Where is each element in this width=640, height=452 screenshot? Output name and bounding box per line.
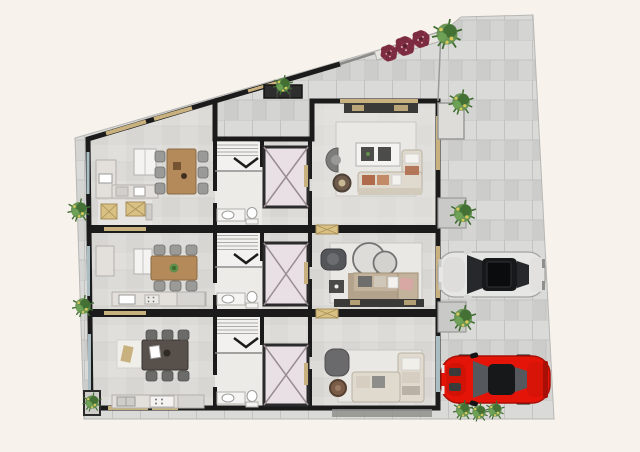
armchair-seat bbox=[331, 155, 341, 165]
chair bbox=[155, 151, 165, 162]
unit-3-living-room bbox=[325, 349, 424, 402]
left-wall-glass bbox=[88, 334, 91, 390]
car-headlight bbox=[439, 282, 442, 290]
table-decor bbox=[164, 350, 171, 357]
car-roof bbox=[488, 364, 515, 395]
partition-wall bbox=[213, 139, 217, 191]
right-wall-glass-door bbox=[436, 336, 440, 392]
sideboard-tray bbox=[378, 147, 391, 161]
centerpiece-plant-core bbox=[172, 266, 176, 270]
burner bbox=[161, 399, 163, 401]
bathroom-sink bbox=[222, 295, 234, 303]
sofa-cushion bbox=[377, 175, 389, 185]
left-wall-glass bbox=[87, 152, 90, 194]
car-taillight bbox=[542, 281, 545, 290]
console-decor bbox=[404, 300, 416, 305]
table-decor bbox=[181, 173, 187, 179]
car-windshield bbox=[473, 361, 489, 398]
chair bbox=[170, 281, 181, 291]
chair bbox=[198, 151, 208, 162]
cooktop bbox=[145, 295, 159, 304]
partition-wall bbox=[213, 203, 217, 227]
table-decor bbox=[149, 345, 161, 358]
chair bbox=[146, 371, 157, 381]
chair bbox=[154, 245, 165, 255]
sofa-cushion bbox=[356, 376, 370, 388]
burner bbox=[148, 297, 150, 299]
curved-cabinet bbox=[325, 349, 349, 376]
elevator-unit-3 bbox=[264, 345, 308, 405]
chair bbox=[198, 167, 208, 178]
chaise-pillow bbox=[405, 154, 419, 163]
elevator-unit-1 bbox=[264, 147, 308, 207]
toilet bbox=[247, 208, 257, 219]
stair-floor bbox=[215, 233, 262, 268]
unit-2-living-room bbox=[321, 243, 424, 307]
car-hood-vent bbox=[449, 368, 461, 376]
car-taillight bbox=[542, 259, 545, 268]
elevator-door bbox=[304, 165, 308, 187]
burner bbox=[155, 403, 157, 405]
sofa-pillow-pink bbox=[399, 277, 414, 291]
silver-sedan bbox=[438, 248, 545, 301]
side-counter bbox=[96, 246, 114, 276]
elevator-unit-2 bbox=[264, 243, 308, 305]
pouf-center bbox=[335, 385, 341, 391]
car-rear-window bbox=[515, 367, 527, 392]
car-rear-deck bbox=[527, 362, 544, 397]
burner bbox=[161, 403, 163, 405]
chair bbox=[186, 245, 197, 255]
table-runner bbox=[173, 162, 181, 170]
unit-2-kitchen-dining bbox=[96, 245, 206, 306]
kitchen-sink bbox=[119, 295, 135, 304]
stove bbox=[150, 396, 174, 407]
left-wall-glass bbox=[87, 246, 90, 296]
car-hood bbox=[443, 257, 465, 292]
sofa-cushion bbox=[372, 376, 385, 388]
console-decor bbox=[352, 105, 364, 111]
side-table-decor bbox=[335, 285, 339, 289]
console-decor bbox=[394, 105, 408, 111]
floor-plan-scene bbox=[0, 0, 640, 452]
chair bbox=[170, 245, 181, 255]
elevator-door bbox=[304, 363, 308, 385]
coffee-table-top bbox=[339, 180, 346, 187]
car-hood-vent bbox=[449, 383, 461, 391]
living-top-window bbox=[340, 99, 418, 103]
car-headlight bbox=[442, 386, 445, 394]
toilet bbox=[247, 391, 257, 402]
sofa-cushion bbox=[358, 276, 372, 287]
car-sunroof bbox=[487, 262, 511, 287]
fridge bbox=[177, 292, 205, 306]
partition-wall bbox=[213, 295, 217, 311]
counter-appliance bbox=[134, 187, 145, 196]
chair bbox=[186, 281, 197, 291]
sofa-cushion bbox=[374, 276, 386, 287]
chair bbox=[178, 371, 189, 381]
burner bbox=[153, 297, 155, 299]
car-hood bbox=[446, 363, 466, 396]
toilet bbox=[247, 292, 257, 303]
site-plan-svg bbox=[0, 0, 640, 452]
car-spoiler bbox=[543, 361, 548, 398]
stair-floor bbox=[215, 317, 262, 352]
partition-wall bbox=[260, 317, 264, 345]
sofa-backrest bbox=[358, 188, 422, 195]
red-coupe bbox=[441, 352, 550, 407]
console-decor bbox=[350, 300, 360, 305]
sofa-pillow bbox=[402, 358, 420, 370]
bathroom-sink bbox=[222, 211, 234, 219]
sofa-cushion bbox=[402, 372, 420, 383]
chair bbox=[162, 330, 173, 340]
burner bbox=[148, 301, 150, 303]
chair bbox=[154, 281, 165, 291]
burner bbox=[153, 301, 155, 303]
toilet-tank bbox=[246, 219, 258, 224]
elevator-door bbox=[304, 262, 308, 284]
dining-table bbox=[167, 149, 196, 194]
partition-wall bbox=[213, 317, 217, 375]
kitchen-sink bbox=[99, 174, 112, 183]
separator-window bbox=[104, 311, 146, 315]
nesting-table-small bbox=[374, 252, 397, 275]
chair bbox=[162, 371, 173, 381]
sofa-pillow bbox=[388, 277, 398, 288]
car-trunk bbox=[530, 257, 544, 292]
sofa-throw bbox=[402, 386, 420, 395]
fridge bbox=[178, 395, 204, 408]
sideboard-plant bbox=[366, 152, 370, 156]
cooktop bbox=[116, 187, 128, 196]
armchair-cushion bbox=[327, 253, 339, 265]
bathroom-sink bbox=[222, 394, 234, 402]
chair bbox=[146, 330, 157, 340]
sofa-pillow bbox=[392, 175, 401, 185]
chair bbox=[178, 330, 189, 340]
sofa-armrest bbox=[348, 273, 354, 300]
car-headlight bbox=[439, 259, 442, 267]
toilet-tank bbox=[246, 303, 258, 308]
balcony-bench bbox=[146, 204, 152, 220]
car-rear-window bbox=[517, 261, 529, 288]
chair bbox=[155, 167, 165, 178]
chaise-throw bbox=[405, 166, 419, 175]
retaining-band bbox=[332, 409, 432, 417]
chair bbox=[198, 183, 208, 194]
burner bbox=[155, 399, 157, 401]
car-windshield bbox=[467, 255, 483, 294]
partition-wall bbox=[213, 233, 217, 283]
car-headlight bbox=[442, 365, 445, 373]
toilet-tank bbox=[246, 402, 258, 407]
chair bbox=[155, 183, 165, 194]
partition-wall bbox=[213, 387, 217, 410]
sofa-cushion bbox=[362, 175, 375, 185]
elevators bbox=[264, 147, 308, 405]
separator-window bbox=[104, 227, 146, 231]
